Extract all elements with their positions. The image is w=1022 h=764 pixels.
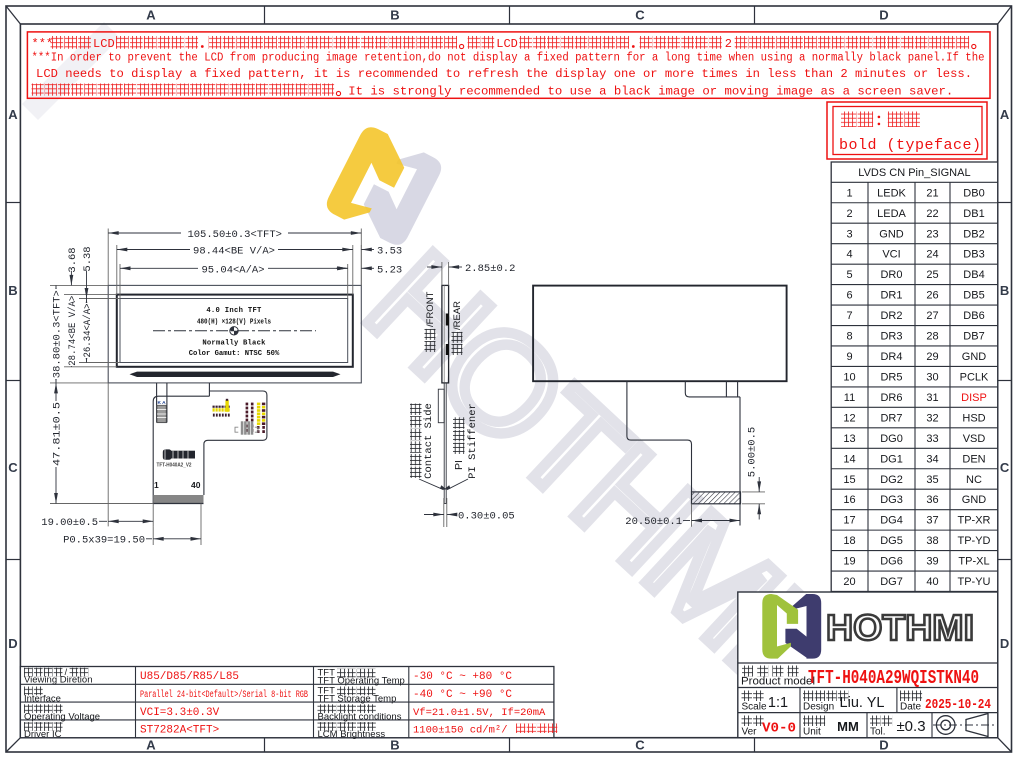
svg-text:C: C [8, 460, 18, 475]
svg-text:480(H) ×128(V) Pixels: 480(H) ×128(V) Pixels [197, 319, 271, 327]
svg-text:11: 11 [844, 392, 855, 404]
svg-text:5: 5 [846, 269, 852, 281]
svg-text:29: 29 [926, 351, 938, 363]
svg-text:5.00±0.5: 5.00±0.5 [747, 427, 759, 477]
svg-text:LVDS CN Pin_SIGNAL: LVDS CN Pin_SIGNAL [858, 167, 970, 179]
svg-text:Contact Side: Contact Side [423, 403, 435, 479]
svg-text:DR2: DR2 [880, 310, 902, 322]
svg-text:DG5: DG5 [880, 535, 903, 547]
svg-text:37: 37 [926, 515, 938, 527]
svg-text:C: C [1000, 460, 1010, 475]
svg-text:DG2: DG2 [880, 474, 903, 486]
svg-text:GND: GND [962, 351, 987, 363]
svg-text:TP-YU: TP-YU [958, 576, 991, 588]
svg-text:DR3: DR3 [880, 331, 902, 343]
svg-text:PCLK: PCLK [960, 371, 989, 383]
svg-text:/REAR: /REAR [452, 301, 463, 330]
svg-text:19.00±0.5: 19.00±0.5 [41, 517, 98, 529]
svg-text:16: 16 [843, 494, 855, 506]
svg-text:bold (typeface): bold (typeface) [839, 137, 982, 154]
svg-text:34: 34 [926, 453, 938, 465]
svg-text:19: 19 [843, 556, 855, 568]
svg-text:33: 33 [926, 433, 938, 445]
svg-text:PI: PI [453, 460, 465, 470]
svg-text:DB5: DB5 [963, 290, 984, 302]
svg-text:95.04<A/A>: 95.04<A/A> [201, 264, 264, 276]
svg-text:20: 20 [843, 576, 855, 588]
svg-text:D: D [879, 8, 888, 23]
svg-text:D: D [879, 738, 888, 753]
svg-text:A: A [146, 8, 156, 23]
svg-text:B: B [8, 283, 17, 298]
svg-text:Backlight conditions: Backlight conditions [318, 711, 402, 722]
svg-text:2.85±0.2: 2.85±0.2 [465, 263, 515, 275]
svg-text:DB0: DB0 [963, 187, 984, 199]
svg-text:TFT-H040A29WQISTKN40: TFT-H040A29WQISTKN40 [808, 667, 979, 689]
svg-text:DB7: DB7 [963, 331, 984, 343]
svg-text:25: 25 [926, 269, 938, 281]
svg-text:28: 28 [926, 331, 938, 343]
svg-text:LEDK: LEDK [877, 187, 906, 199]
svg-text:Operating Voltage: Operating Voltage [24, 711, 100, 722]
svg-text:±0.3: ±0.3 [896, 718, 925, 735]
svg-text:28.74<BE V/A>: 28.74<BE V/A> [67, 296, 79, 366]
svg-text:DEN: DEN [962, 453, 985, 465]
svg-text:DB6: DB6 [963, 310, 984, 322]
svg-text:24: 24 [926, 249, 938, 261]
svg-text:39: 39 [926, 556, 938, 568]
svg-text:8: 8 [846, 331, 852, 343]
svg-text:TFT Storage Temp: TFT Storage Temp [318, 694, 397, 705]
svg-text:DG6: DG6 [880, 556, 903, 568]
svg-text:Viewing Diretion: Viewing Diretion [24, 675, 92, 686]
svg-text:LCD: LCD [93, 37, 115, 51]
svg-text:1: 1 [154, 480, 159, 490]
svg-text:Product model: Product model [741, 676, 815, 688]
svg-text:HOTHMI: HOTHMI [826, 607, 974, 648]
svg-text:3: 3 [846, 228, 852, 240]
svg-text:1: 1 [846, 187, 852, 199]
svg-text:D: D [8, 636, 17, 651]
svg-text:0.30±0.05: 0.30±0.05 [458, 511, 515, 523]
svg-text:Tol.: Tol. [870, 727, 886, 738]
svg-text:1:1: 1:1 [768, 695, 788, 711]
svg-text:TFT-H040A2_V2: TFT-H040A2_V2 [157, 463, 192, 469]
svg-text:Driver IC: Driver IC [24, 729, 62, 740]
svg-text:DG3: DG3 [880, 494, 903, 506]
svg-text:VSD: VSD [963, 433, 986, 445]
svg-text:32: 32 [926, 412, 938, 424]
svg-text:P0.5x39=19.50: P0.5x39=19.50 [63, 534, 145, 546]
svg-text:HSD: HSD [962, 412, 985, 424]
svg-text:DG4: DG4 [880, 515, 903, 527]
svg-text:27: 27 [926, 310, 938, 322]
svg-text:Liu. YL: Liu. YL [840, 695, 885, 711]
svg-text:C: C [635, 738, 645, 753]
svg-text:98.44<BE V/A>: 98.44<BE V/A> [193, 246, 275, 258]
svg-text:Color Gamut: NTSC 50%: Color Gamut: NTSC 50% [189, 350, 280, 358]
svg-text:105.50±0.3<TFT>: 105.50±0.3<TFT> [187, 229, 282, 241]
svg-text:Normally Black: Normally Black [202, 340, 266, 348]
svg-text:23: 23 [926, 228, 938, 240]
svg-text:DG1: DG1 [880, 453, 903, 465]
svg-text:14: 14 [843, 453, 855, 465]
svg-text:4: 4 [846, 249, 852, 261]
svg-text:4.0 Inch TFT: 4.0 Inch TFT [206, 307, 262, 315]
svg-text:13: 13 [843, 433, 855, 445]
svg-text:VCI=3.3±0.3V: VCI=3.3±0.3V [140, 707, 220, 719]
svg-text:MM: MM [837, 719, 859, 734]
svg-text:DR5: DR5 [880, 371, 902, 383]
svg-text:3.53: 3.53 [377, 246, 402, 258]
svg-text:A: A [1000, 107, 1010, 122]
svg-text:7: 7 [846, 310, 852, 322]
svg-text:DB1: DB1 [963, 208, 984, 220]
svg-text:D: D [1000, 636, 1009, 651]
svg-text:TP-XL: TP-XL [958, 556, 989, 568]
svg-text:LCD needs to display a fixed p: LCD needs to display a fixed pattern, it… [36, 68, 972, 81]
svg-text:GND: GND [879, 228, 904, 240]
svg-text:DR6: DR6 [880, 392, 902, 404]
svg-text:2: 2 [846, 208, 852, 220]
svg-text:U85/D85/R85/L85: U85/D85/R85/L85 [140, 671, 239, 683]
svg-text:9: 9 [846, 351, 852, 363]
svg-text:22: 22 [926, 208, 938, 220]
svg-text:36: 36 [926, 494, 938, 506]
svg-text:ST7282A<TFT>: ST7282A<TFT> [140, 725, 219, 737]
svg-text:35: 35 [926, 474, 938, 486]
svg-text:38.80±0.3<TFT>: 38.80±0.3<TFT> [52, 290, 64, 378]
svg-text:TP-YD: TP-YD [958, 535, 991, 547]
svg-text:38: 38 [926, 535, 938, 547]
svg-text:2: 2 [725, 37, 732, 51]
svg-text:3.68: 3.68 [67, 247, 79, 272]
svg-text:A: A [8, 107, 18, 122]
svg-text:20.50±0.1: 20.50±0.1 [625, 516, 682, 528]
svg-text:LCD: LCD [496, 37, 518, 51]
svg-text:Date: Date [900, 702, 922, 713]
svg-text:DG7: DG7 [880, 576, 903, 588]
svg-text:26.34<A/A>: 26.34<A/A> [82, 304, 94, 358]
svg-text:K A: K A [158, 400, 167, 406]
svg-text:5.38: 5.38 [82, 246, 94, 271]
svg-text:B: B [1000, 283, 1009, 298]
svg-text:Unit: Unit [803, 727, 821, 738]
svg-text:18: 18 [843, 535, 855, 547]
svg-text:DR0: DR0 [880, 269, 902, 281]
svg-text:6: 6 [846, 290, 852, 302]
svg-text:NC: NC [966, 474, 982, 486]
svg-text:12: 12 [843, 412, 855, 424]
svg-text:2025-10-24: 2025-10-24 [925, 697, 991, 713]
svg-text:40: 40 [926, 576, 938, 588]
svg-text:40: 40 [191, 480, 201, 490]
svg-text:DR1: DR1 [880, 290, 902, 302]
svg-text:15: 15 [843, 474, 855, 486]
svg-text:Parallel 24-bit<Default>/Seria: Parallel 24-bit<Default>/Serial 8-bit RG… [140, 689, 308, 700]
svg-text:VCI: VCI [882, 249, 900, 261]
svg-text:TP-XR: TP-XR [958, 515, 991, 527]
svg-text:17: 17 [843, 515, 855, 527]
svg-text:Ver: Ver [742, 727, 758, 738]
svg-text:C: C [635, 8, 645, 23]
svg-text:LEDA: LEDA [877, 208, 906, 220]
svg-text:/FRONT: /FRONT [425, 291, 436, 327]
svg-text:B: B [390, 8, 399, 23]
svg-text:47.81±0.5: 47.81±0.5 [52, 402, 64, 466]
svg-text:DB2: DB2 [963, 228, 984, 240]
svg-text:30: 30 [926, 371, 938, 383]
svg-text:10: 10 [843, 371, 855, 383]
svg-text:***In order to prevent the LCD: ***In order to prevent the LCD from prod… [32, 52, 985, 65]
svg-text:A: A [146, 738, 156, 753]
svg-text:***: *** [32, 37, 54, 51]
svg-text:DB3: DB3 [963, 249, 984, 261]
svg-text:Interface: Interface [24, 694, 61, 705]
svg-text:DISP: DISP [961, 392, 987, 404]
svg-text:It is strongly recommended to: It is strongly recommended to use a blac… [348, 85, 953, 99]
svg-text:Vf=21.0±1.5V, If=20mA: Vf=21.0±1.5V, If=20mA [413, 707, 546, 719]
svg-text:DR7: DR7 [880, 412, 902, 424]
svg-text:DB4: DB4 [963, 269, 984, 281]
svg-text:Design: Design [803, 702, 834, 713]
svg-text:31: 31 [926, 392, 938, 404]
svg-text:GND: GND [962, 494, 987, 506]
svg-text:21: 21 [926, 187, 938, 199]
svg-text:26: 26 [926, 290, 938, 302]
svg-text:Scale: Scale [742, 702, 767, 713]
svg-text:-40 °C ~ +90 °C: -40 °C ~ +90 °C [413, 689, 512, 701]
svg-text:B: B [390, 738, 399, 753]
svg-text:LCM Brightness: LCM Brightness [318, 729, 386, 740]
svg-text:1100±150 cd/m²/: 1100±150 cd/m²/ [413, 725, 508, 737]
svg-text:DG0: DG0 [880, 433, 903, 445]
svg-text:V0-0: V0-0 [762, 721, 796, 737]
svg-text:-30 °C ~ +80 °C: -30 °C ~ +80 °C [413, 671, 512, 683]
svg-text:DR4: DR4 [880, 351, 902, 363]
svg-text:PI Stiffener: PI Stiffener [467, 403, 479, 479]
svg-text:5.23: 5.23 [377, 264, 402, 276]
